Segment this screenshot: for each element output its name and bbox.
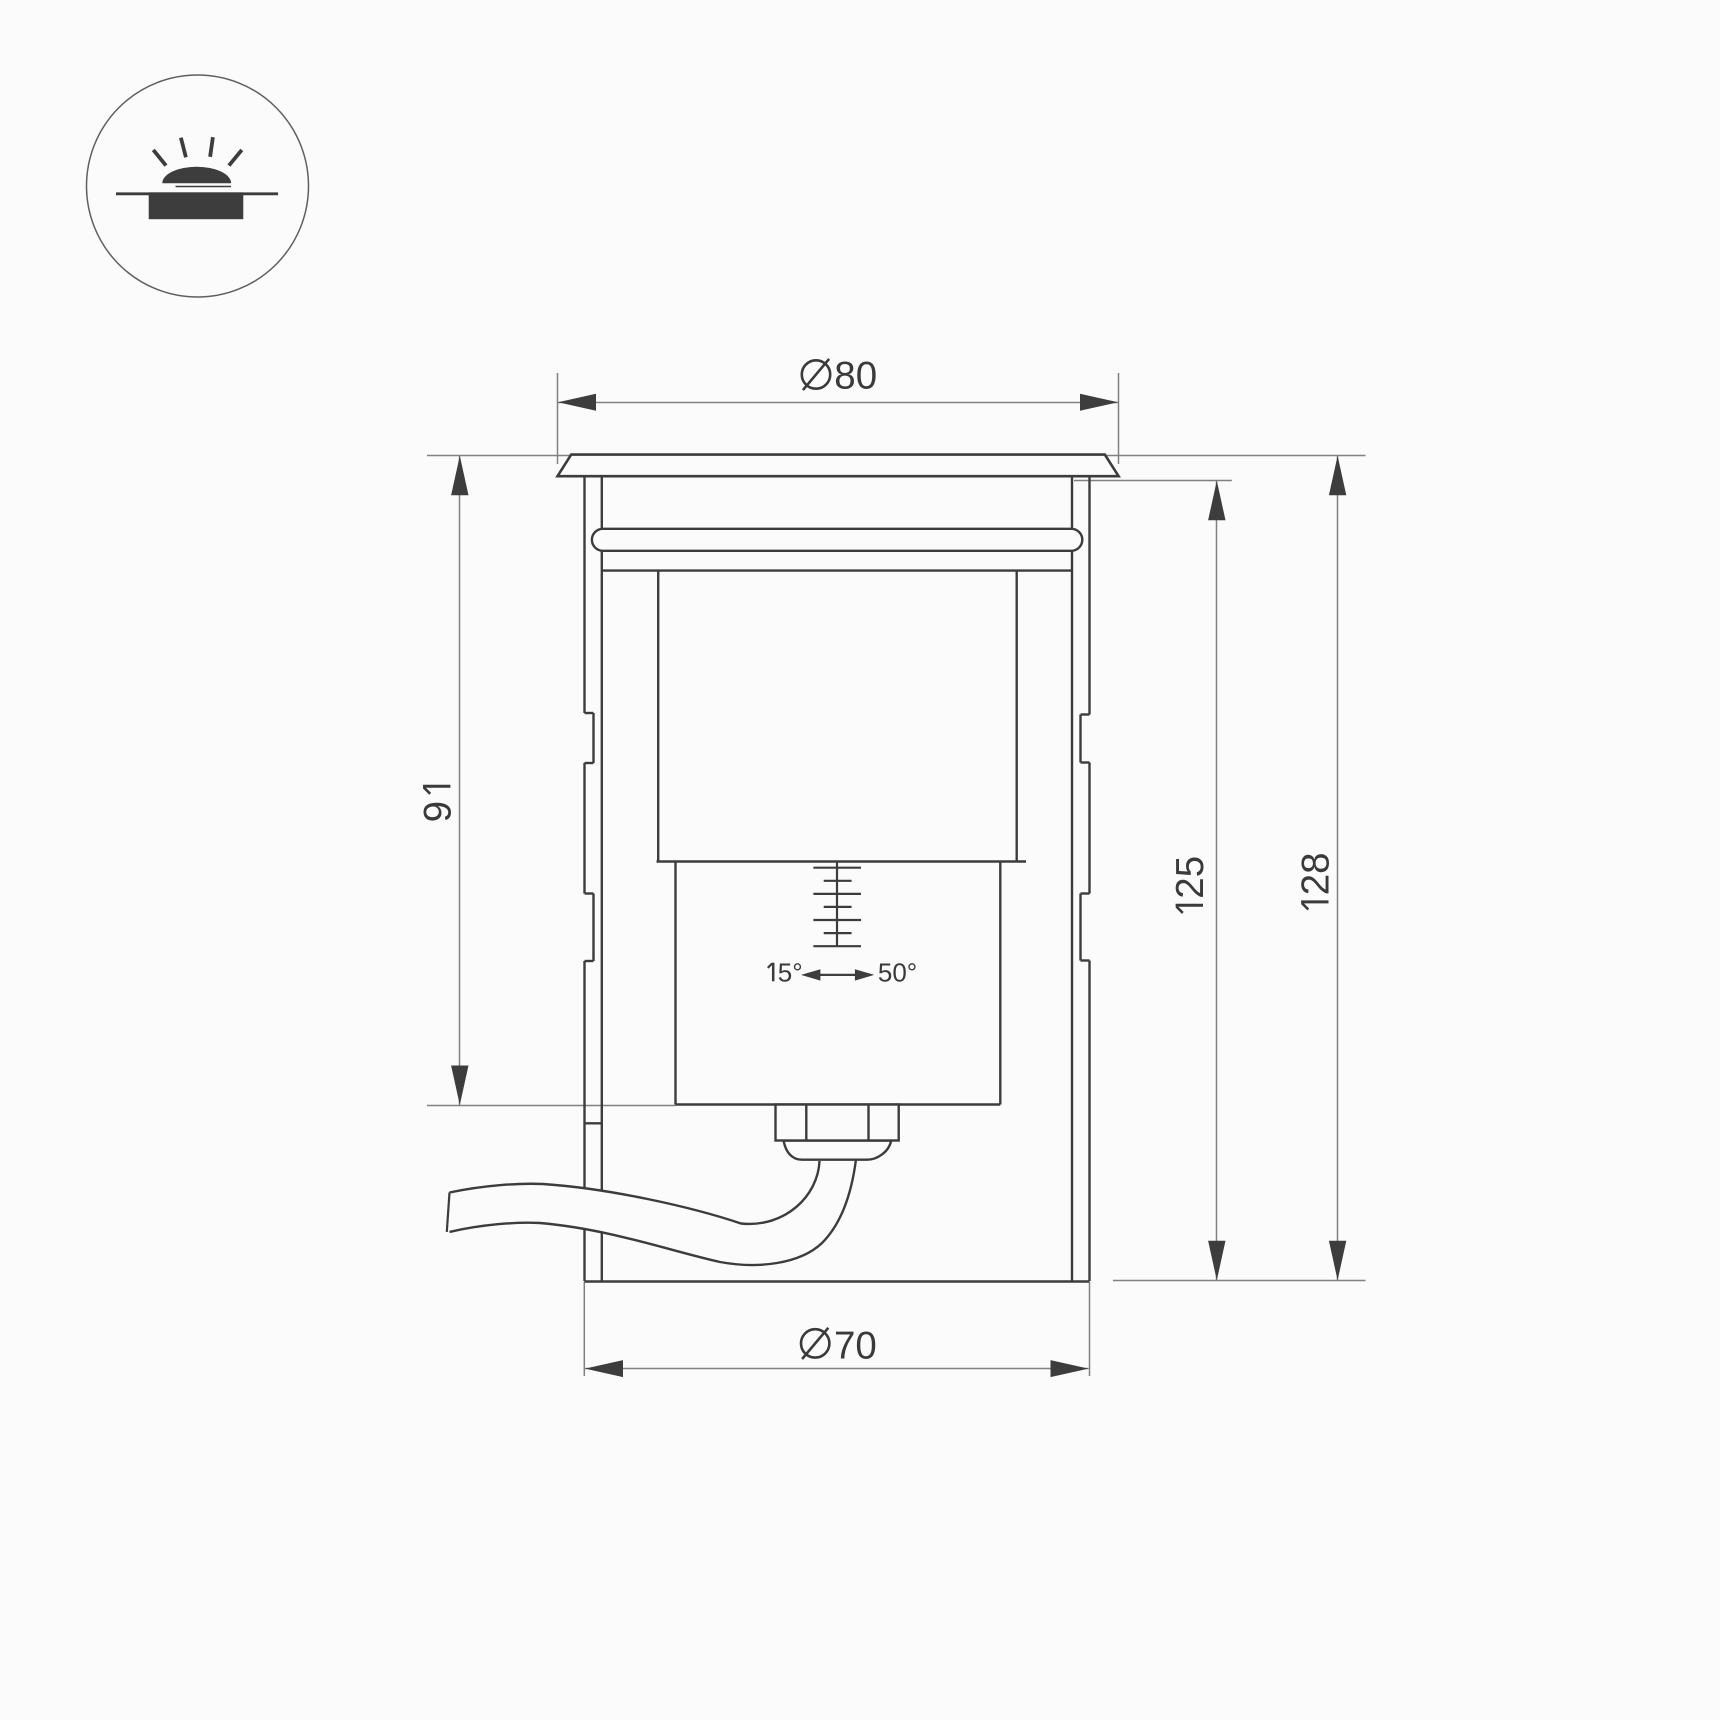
svg-text:25: 25 xyxy=(1169,856,1212,899)
svg-text:28: 28 xyxy=(1295,852,1338,895)
svg-text:80: 80 xyxy=(834,355,877,398)
svg-text:70: 70 xyxy=(834,1325,877,1368)
svg-text:5°: 5° xyxy=(778,957,803,987)
svg-text:9: 9 xyxy=(416,801,459,822)
svg-text:50°: 50° xyxy=(878,957,917,987)
